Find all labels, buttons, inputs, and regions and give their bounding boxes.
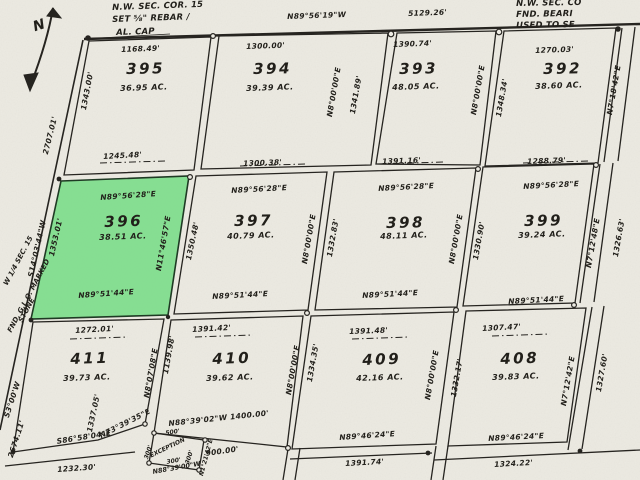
lot-398-area: 48.11 AC. — [380, 230, 428, 241]
lot-409-number: 409 — [362, 350, 401, 369]
lot-396-number: 396 — [104, 212, 143, 231]
lot-396-area: 38.51 AC. — [99, 231, 147, 242]
lot-395-area: 36.95 AC. — [120, 82, 168, 93]
lot-410-number: 410 — [212, 349, 251, 368]
ne-corner-note-2: FND. BEARI — [516, 9, 573, 20]
lot-399-area: 39.24 AC. — [518, 229, 566, 240]
lot-392-top: 1270.03' — [535, 45, 574, 55]
lot-392-bottom: 1288.79' — [527, 156, 566, 166]
lot-394-number: 394 — [253, 59, 292, 78]
lot-409-area: 42.16 AC. — [356, 372, 404, 383]
lot-394-bottom: 1300.38' — [243, 158, 282, 168]
lot-393-area: 48.05 AC. — [392, 81, 440, 92]
ne-corner-note-3: USED TO SE — [516, 20, 575, 31]
lot-409-top: 1391.48' — [349, 326, 388, 336]
lot-398-number: 398 — [386, 213, 425, 232]
lot-410-area: 39.62 AC. — [206, 372, 254, 383]
ne-corner-note-1: N.W. SEC. CO — [516, 0, 582, 9]
lot-395-number: 395 — [126, 59, 165, 78]
lot-394-top: 1300.00' — [246, 41, 285, 51]
lot-392-area: 38.60 AC. — [535, 80, 583, 91]
lot-393-number: 393 — [399, 59, 438, 78]
lot-411-area: 39.73 AC. — [63, 372, 111, 383]
lot-397-area: 40.79 AC. — [227, 230, 275, 241]
nw-corner-note-3: AL. CAP — [116, 27, 155, 38]
lot-397-number: 397 — [234, 211, 273, 230]
lot-408-area: 39.83 AC. — [492, 371, 540, 382]
lot-408-number: 408 — [500, 349, 539, 368]
lot-392-number: 392 — [543, 59, 582, 78]
lot-395-top: 1168.49' — [121, 44, 160, 54]
section-line-distance: 5129.26' — [408, 8, 447, 18]
lot-411-number: 411 — [70, 349, 109, 368]
lot-394-area: 39.39 AC. — [246, 82, 294, 93]
plat-map: N N.W. SEC. COR. 15 SET ⅝" REBAR / AL. C… — [0, 0, 640, 480]
lot-393-bottom: 1391.16' — [382, 156, 421, 166]
lot-399-number: 399 — [524, 211, 563, 230]
lot-393-top: 1390.74' — [393, 39, 432, 49]
